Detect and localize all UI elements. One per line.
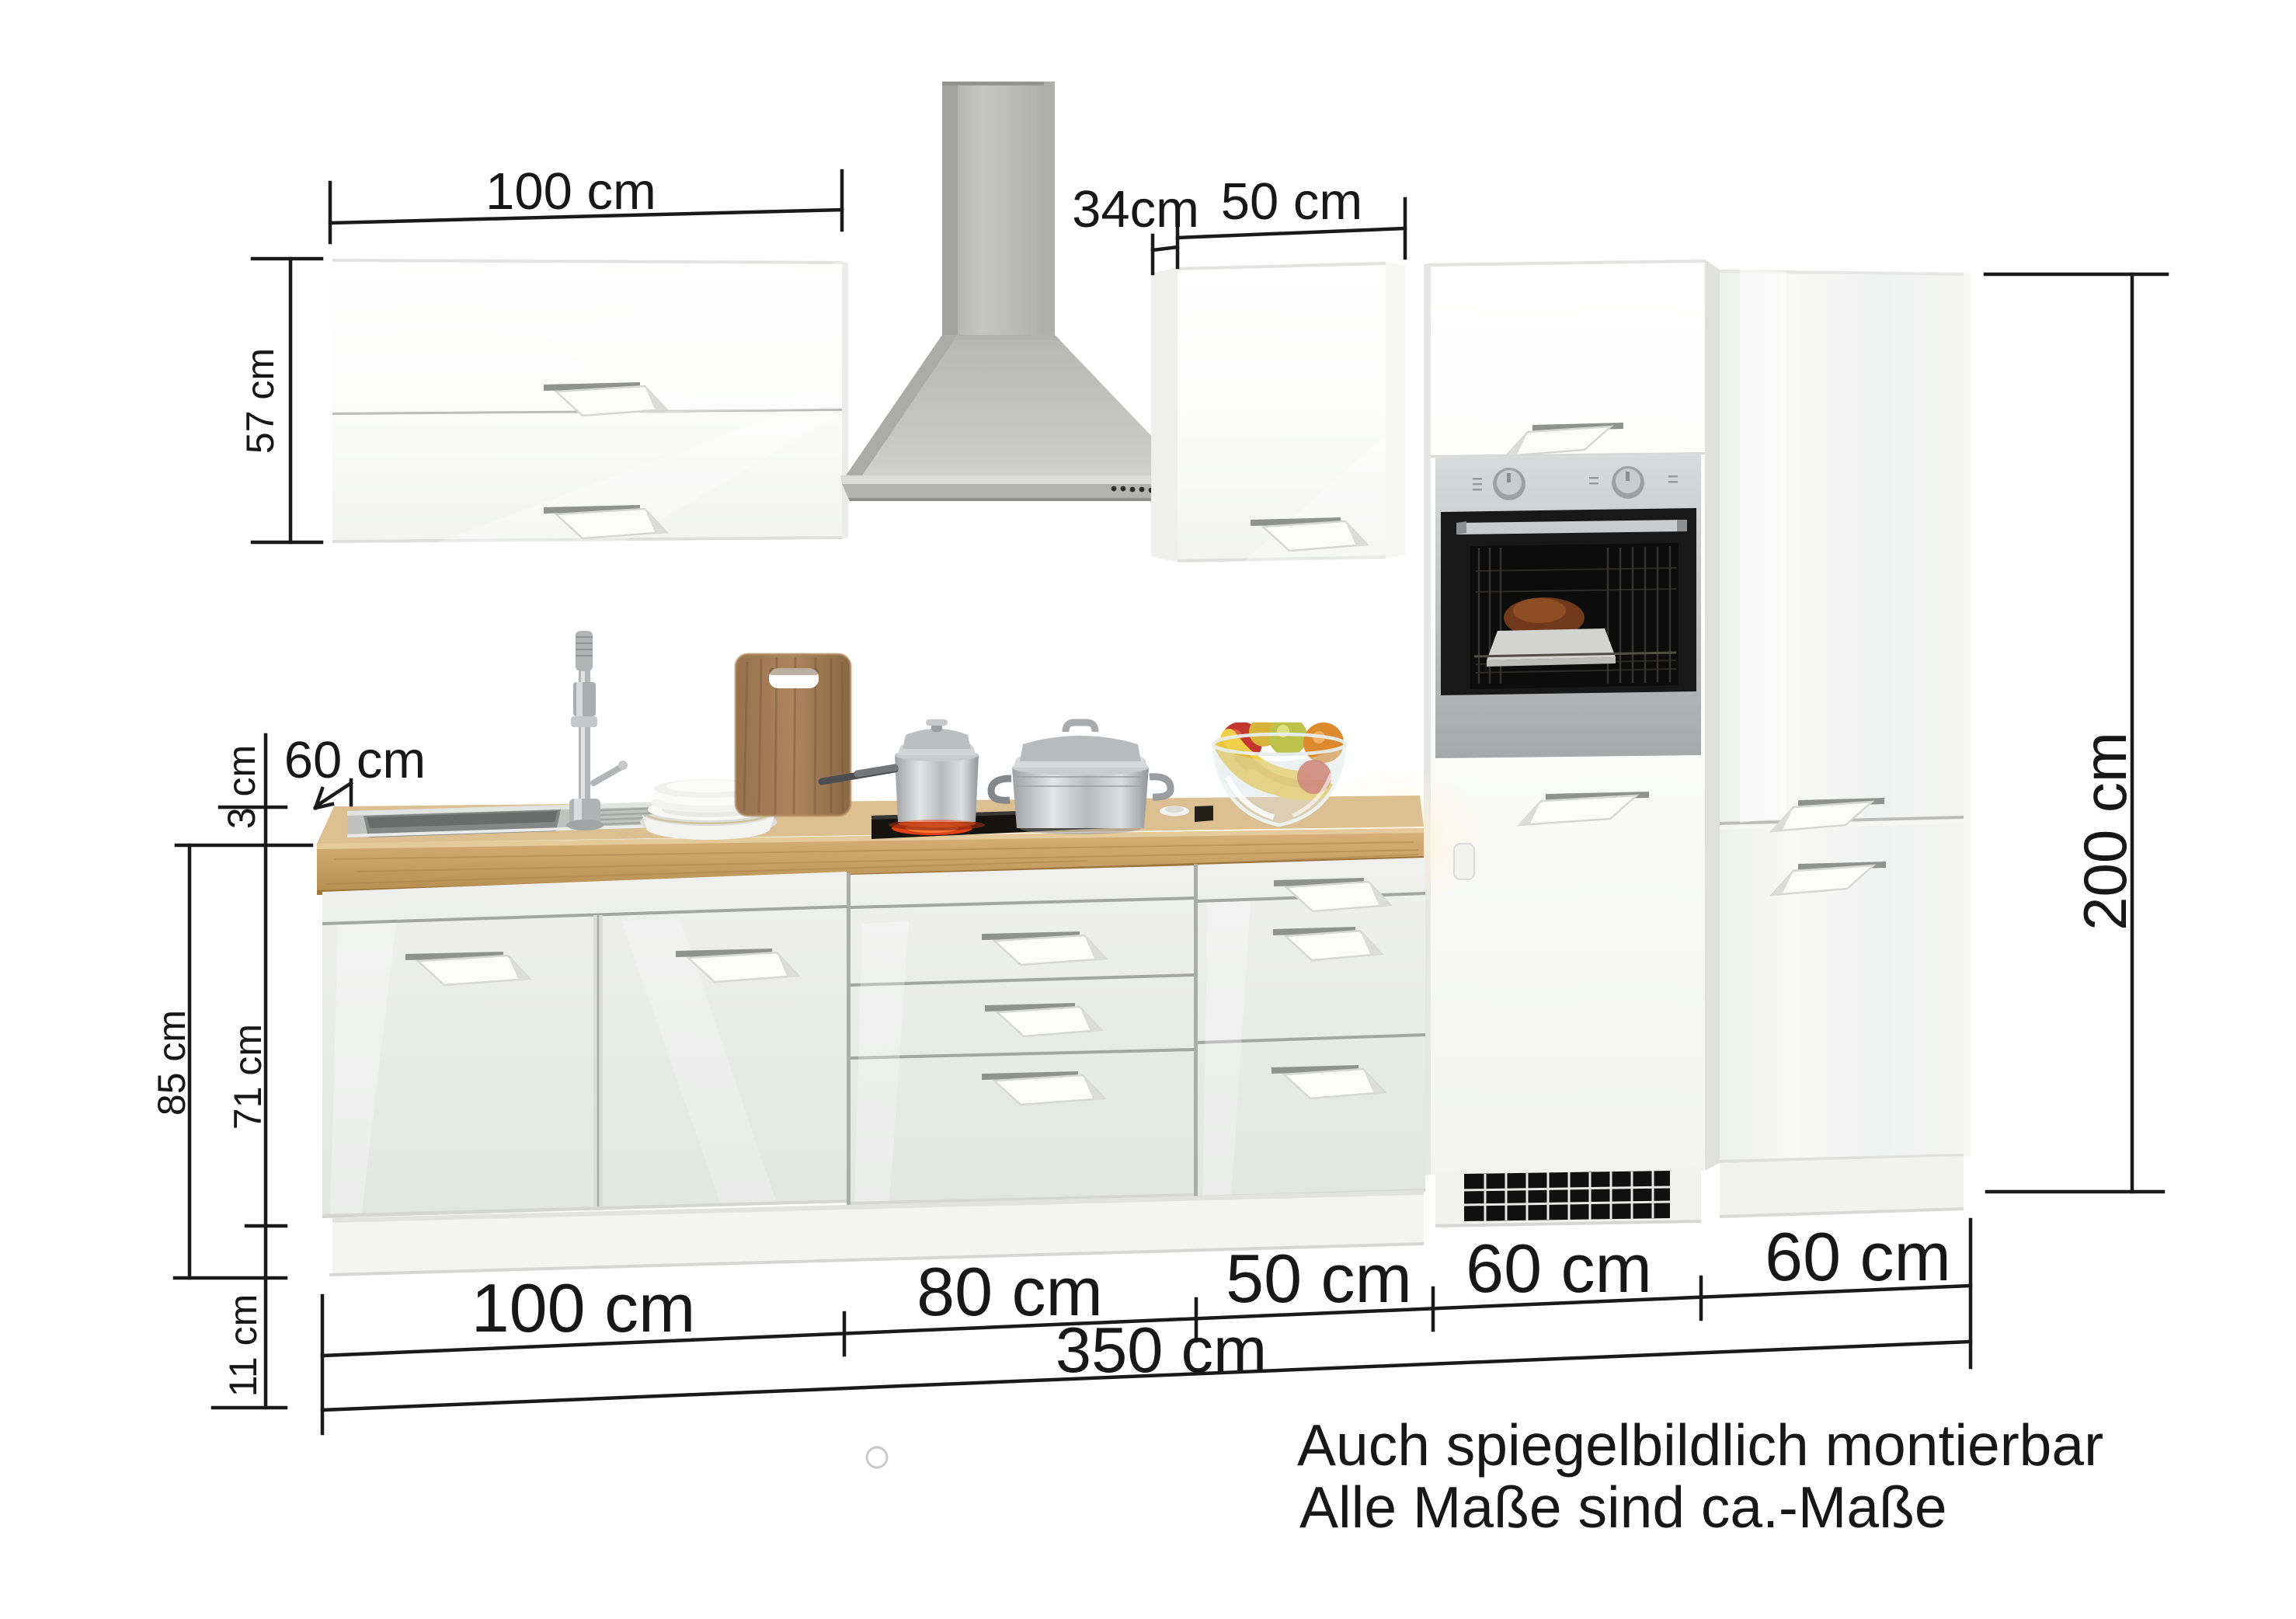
svg-text:3 cm: 3 cm [220, 745, 263, 829]
svg-text:Alle Maße sind ca.-Maße: Alle Maße sind ca.-Maße [1299, 1475, 1947, 1540]
svg-text:100 cm: 100 cm [471, 1269, 696, 1346]
svg-text:50 cm: 50 cm [1221, 172, 1362, 231]
svg-text:Auch spiegelbildlich montierba: Auch spiegelbildlich montierbar [1297, 1412, 2103, 1478]
svg-text:57 cm: 57 cm [238, 348, 282, 454]
svg-text:350 cm: 350 cm [1056, 1314, 1267, 1386]
svg-text:50 cm: 50 cm [1226, 1240, 1412, 1317]
svg-text:11 cm: 11 cm [221, 1294, 265, 1397]
svg-text:200 cm: 200 cm [2071, 732, 2139, 931]
svg-text:71 cm: 71 cm [226, 1024, 270, 1130]
svg-text:60 cm: 60 cm [1466, 1230, 1652, 1307]
svg-text:34cm: 34cm [1072, 180, 1199, 238]
svg-text:100 cm: 100 cm [485, 162, 656, 221]
svg-text:60 cm: 60 cm [1765, 1218, 1951, 1295]
svg-text:60 cm: 60 cm [284, 731, 426, 789]
svg-text:85 cm: 85 cm [150, 1010, 193, 1116]
